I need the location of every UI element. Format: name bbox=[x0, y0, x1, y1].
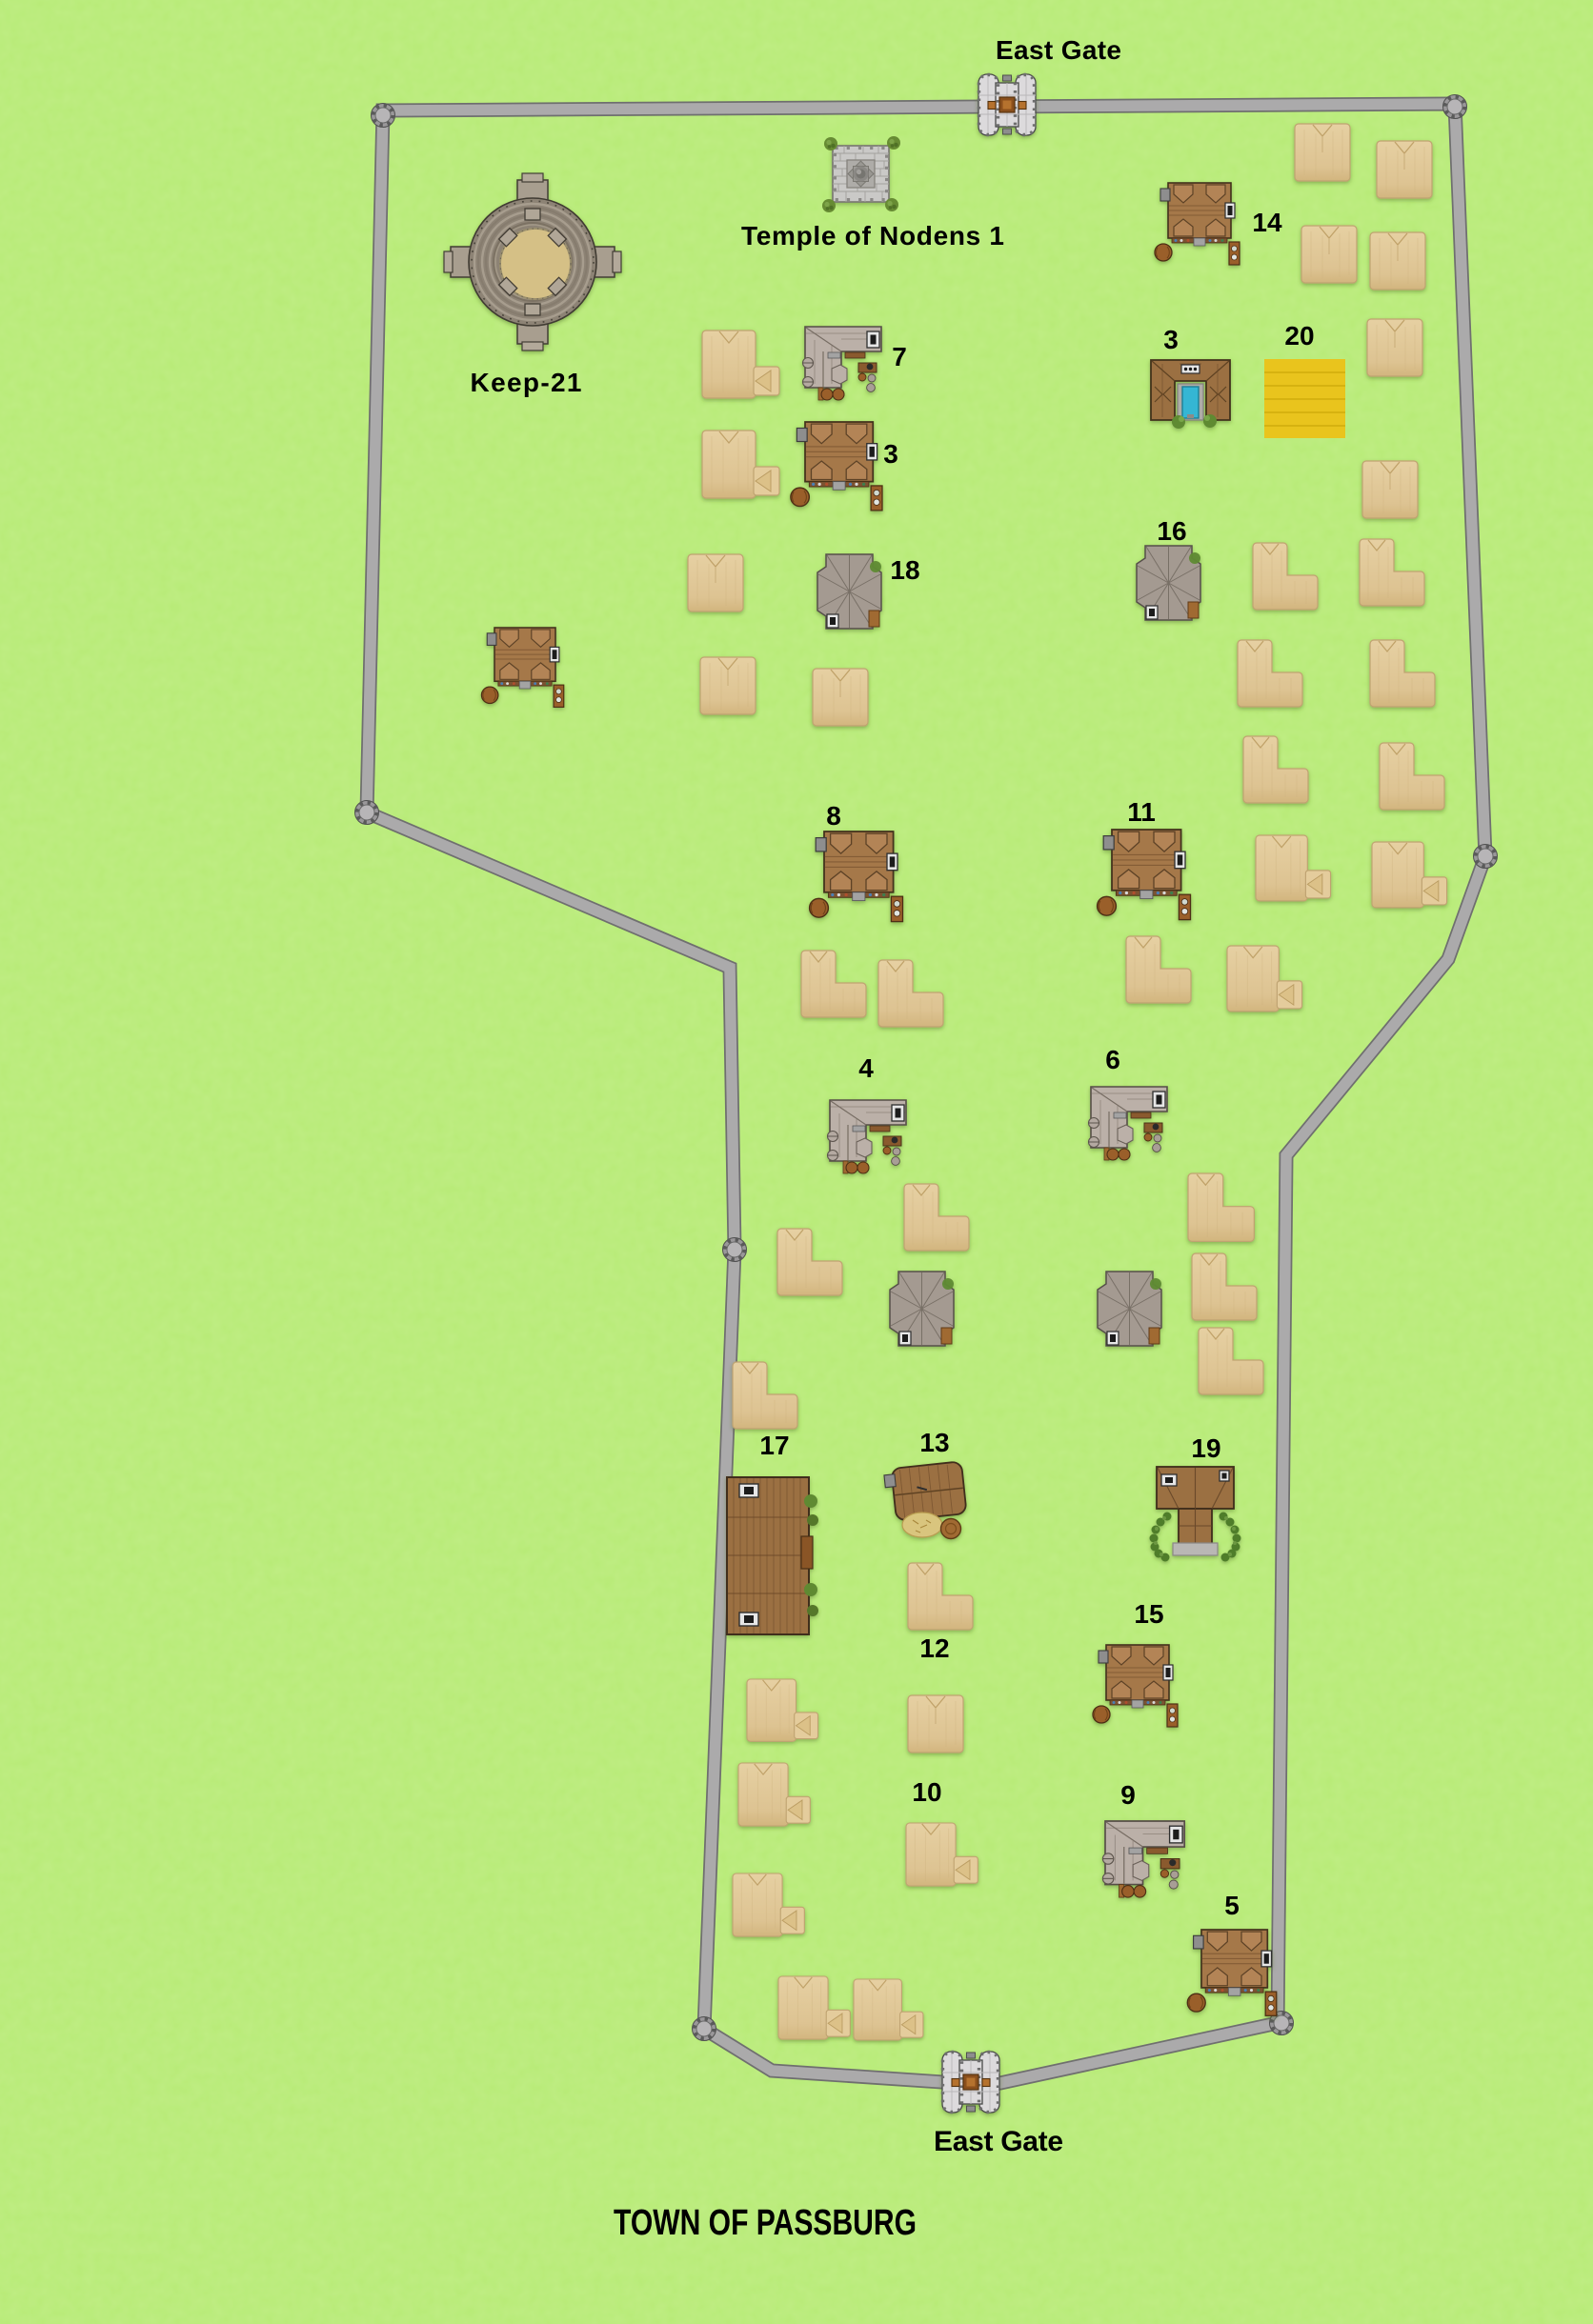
svg-text:3: 3 bbox=[883, 439, 898, 469]
svg-text:4: 4 bbox=[858, 1053, 874, 1083]
svg-text:14: 14 bbox=[1252, 208, 1282, 237]
svg-text:16: 16 bbox=[1157, 516, 1186, 546]
svg-text:TOWN OF PASSBURG: TOWN OF PASSBURG bbox=[614, 2203, 917, 2243]
svg-text:12: 12 bbox=[919, 1633, 949, 1663]
svg-text:East Gate: East Gate bbox=[996, 35, 1121, 65]
svg-text:7: 7 bbox=[892, 342, 907, 371]
svg-text:13: 13 bbox=[919, 1428, 949, 1457]
svg-text:17: 17 bbox=[759, 1431, 789, 1460]
svg-text:Temple of Nodens 1: Temple of Nodens 1 bbox=[741, 221, 1004, 250]
svg-text:6: 6 bbox=[1105, 1045, 1120, 1074]
svg-text:5: 5 bbox=[1224, 1891, 1240, 1920]
svg-text:9: 9 bbox=[1120, 1780, 1136, 1810]
svg-text:19: 19 bbox=[1191, 1433, 1220, 1463]
svg-text:11: 11 bbox=[1127, 797, 1156, 827]
svg-text:20: 20 bbox=[1284, 321, 1314, 351]
svg-text:Keep-21: Keep-21 bbox=[471, 368, 582, 397]
svg-text:18: 18 bbox=[890, 555, 919, 585]
svg-text:8: 8 bbox=[826, 801, 841, 831]
svg-text:15: 15 bbox=[1134, 1599, 1163, 1629]
svg-text:3: 3 bbox=[1163, 325, 1179, 354]
svg-text:East Gate: East Gate bbox=[934, 2126, 1063, 2157]
svg-text:10: 10 bbox=[912, 1777, 941, 1807]
